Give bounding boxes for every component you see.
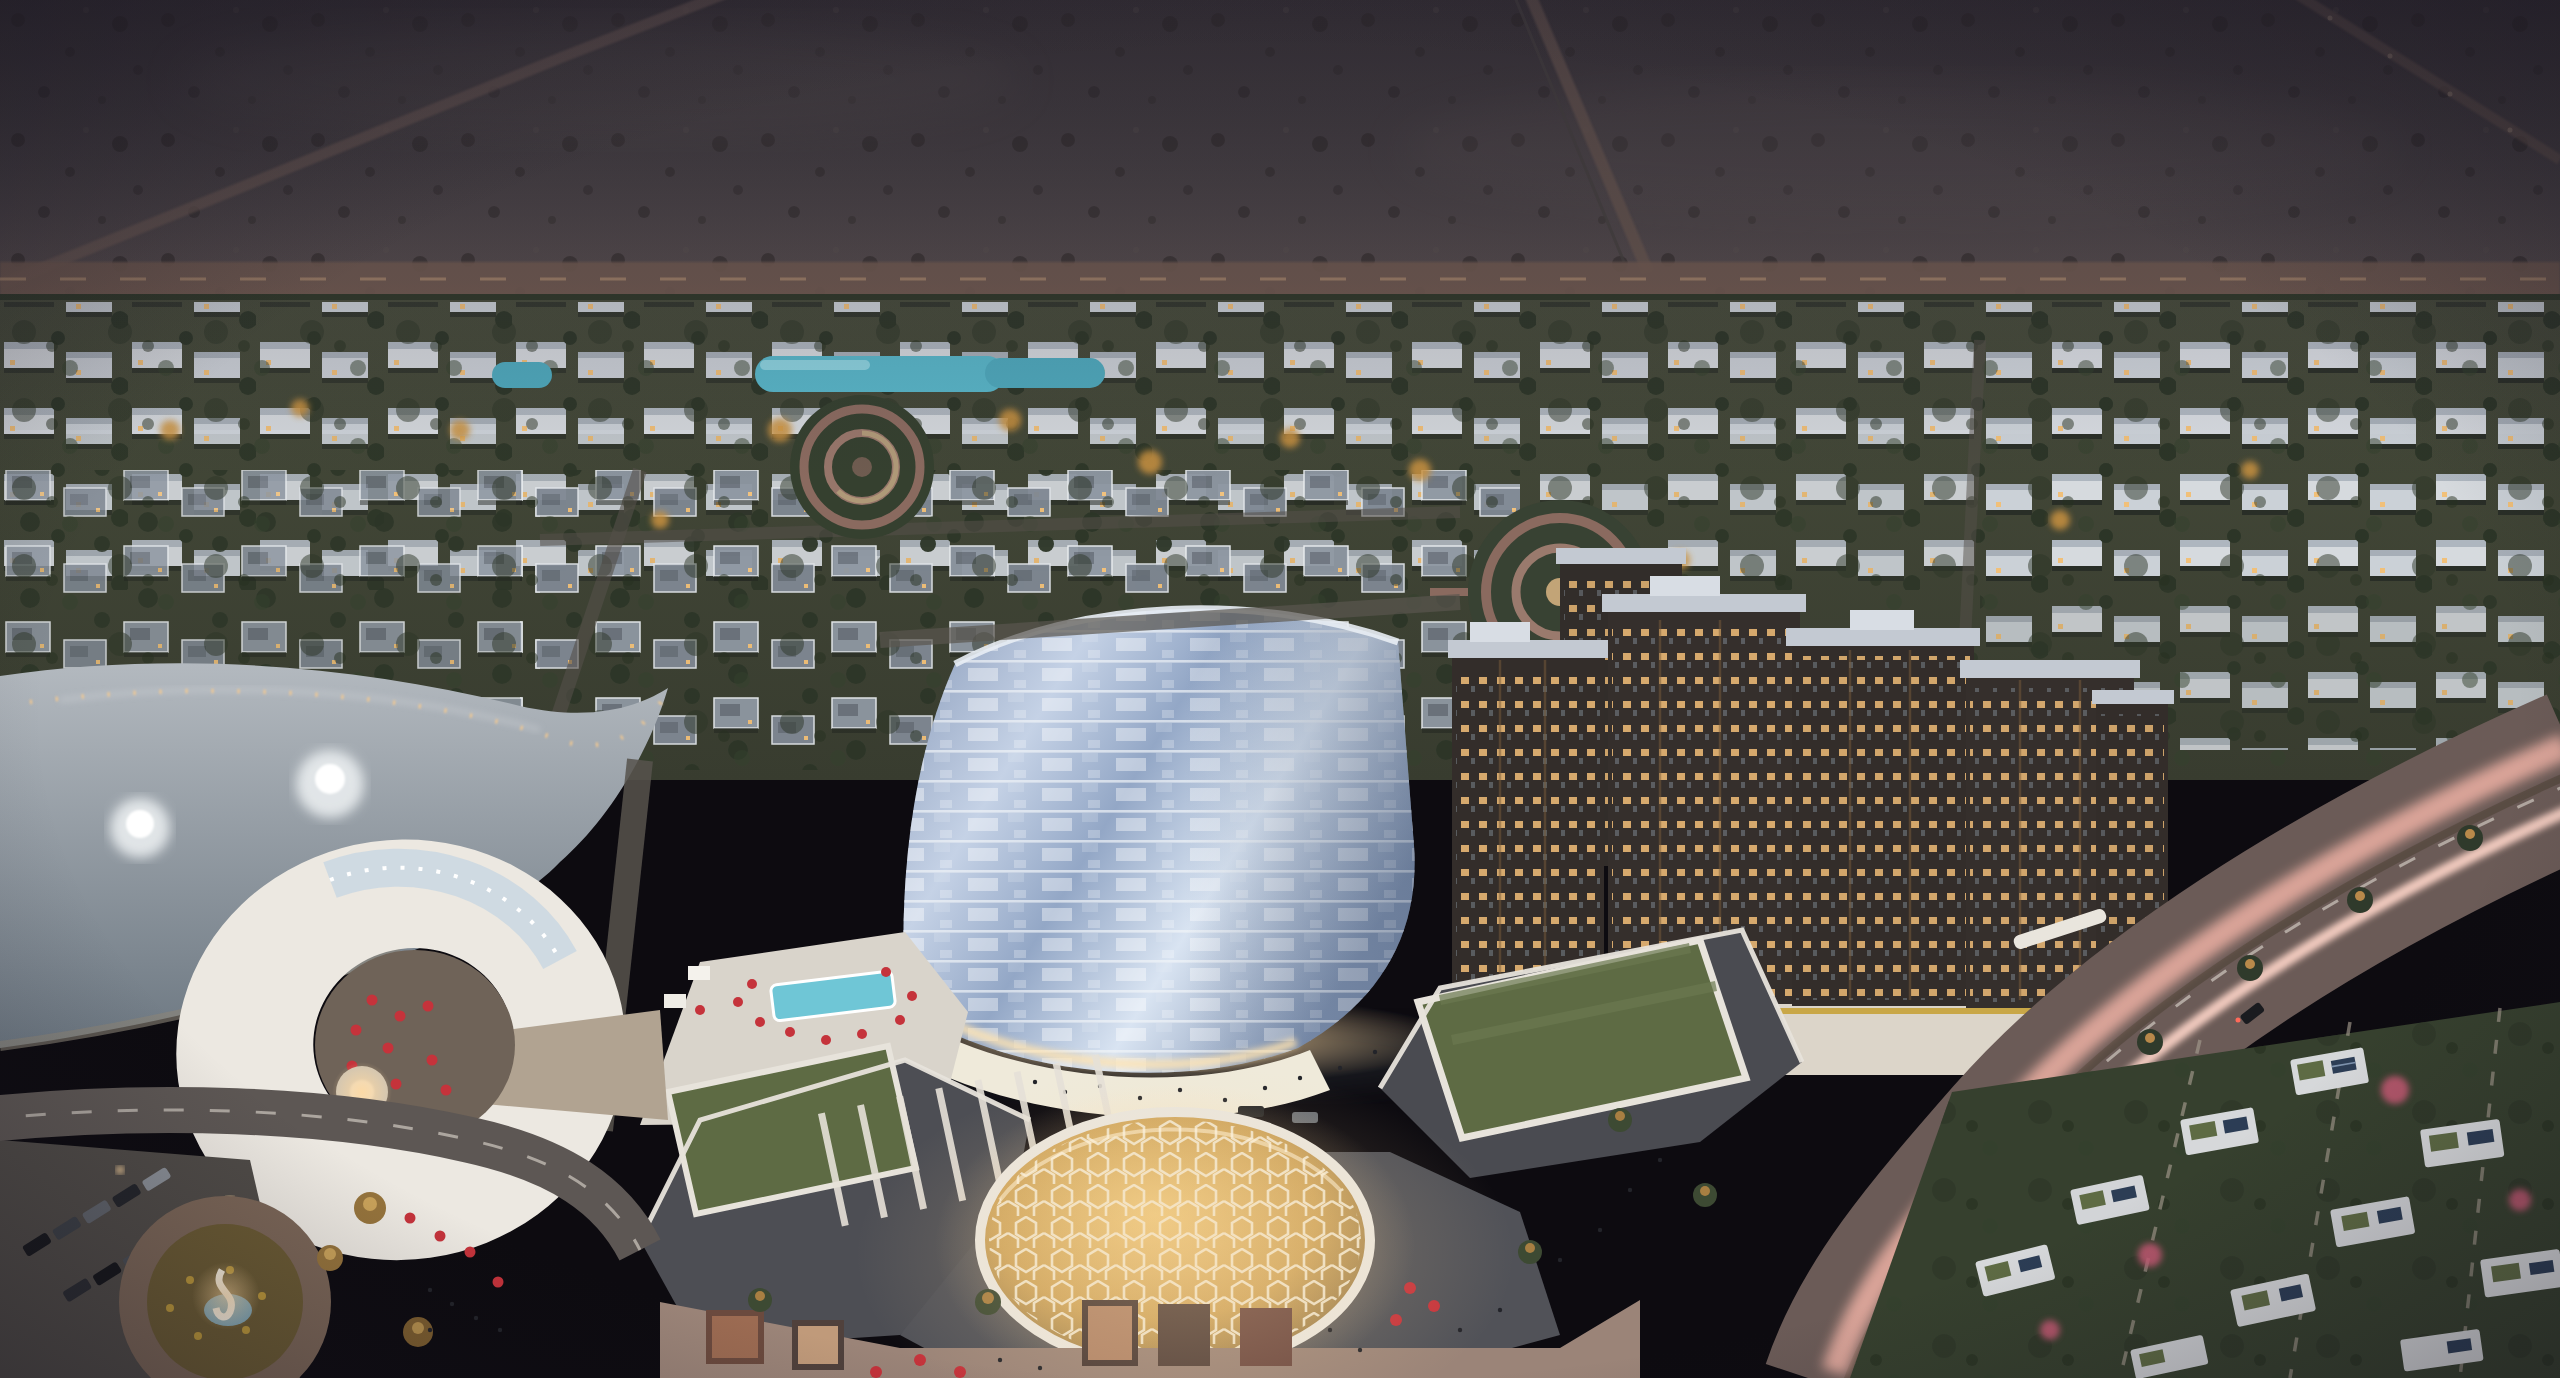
- vignette: [0, 0, 2560, 1378]
- aerial-render: [0, 0, 2560, 1378]
- aerial-render-stage: [0, 0, 2560, 1378]
